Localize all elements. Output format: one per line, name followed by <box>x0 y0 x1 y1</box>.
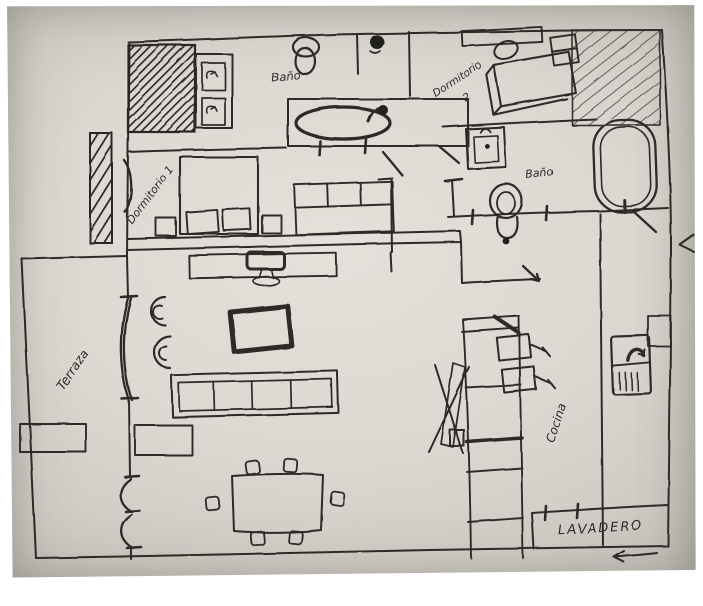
shower-head-icon <box>370 35 384 53</box>
kitchen-sink-icon <box>502 364 555 393</box>
bathtub-icon <box>288 99 468 146</box>
doors <box>121 147 656 548</box>
radiator-hatch-icon <box>90 133 112 243</box>
pillow-icon <box>492 38 520 62</box>
wall-right <box>662 30 671 546</box>
wall-kitchen-left <box>461 242 540 283</box>
sliding-door-terraza-icon <box>121 298 132 400</box>
room-bano1 <box>128 35 468 146</box>
arrows <box>614 235 694 562</box>
dining-chair-icon <box>245 460 260 475</box>
entrance-arrow-icon <box>680 235 694 252</box>
dining-table-icon <box>232 474 323 532</box>
vanity-icon <box>196 54 232 128</box>
wall-terrace-top <box>22 256 126 259</box>
label-dormitorio2-number: 2 <box>460 90 473 105</box>
room-dormitorio2 <box>462 27 660 125</box>
tv-icon <box>247 252 284 286</box>
nightstand-right-icon <box>262 215 281 233</box>
label-bano1: Baño <box>270 68 301 85</box>
sink-drainer-icon <box>611 335 651 394</box>
wall-bano1-partition <box>357 34 358 74</box>
wardrobe-hatch-2-icon <box>572 30 660 125</box>
dining-chair-icon <box>205 496 219 510</box>
cooktop-icon <box>497 332 550 361</box>
toilet-2-icon <box>490 184 522 244</box>
dining-chair-icon <box>330 491 345 506</box>
armchair-2-icon <box>154 336 170 368</box>
floor-plan-photo: Baño Dormitorio 1 Dormitorio 2 Baño Terr… <box>0 0 703 606</box>
door-leaf-hall-icon <box>383 152 402 175</box>
wall-unit-icon <box>648 316 671 346</box>
label-bano2: Baño <box>525 166 554 182</box>
wall-terrace-left <box>22 259 36 558</box>
coffee-table-icon <box>230 306 292 352</box>
wardrobe-hatch-icon <box>128 45 195 132</box>
bed-2-icon <box>180 157 258 234</box>
wall-hallway <box>378 178 392 272</box>
label-dormitorio2: Dormitorio <box>431 59 485 100</box>
nightstand-left-icon <box>156 218 176 236</box>
bed-icon <box>485 52 577 115</box>
wall-bano2-left <box>452 180 454 216</box>
sofa-icon <box>171 371 338 417</box>
room-living <box>135 252 345 545</box>
cabinet-icon <box>135 425 192 455</box>
dining-chair-icon <box>250 531 264 545</box>
door-leaf-bano2-icon <box>440 147 459 163</box>
wall-dorm1-top <box>128 148 286 152</box>
wall-dorm2-left <box>409 32 410 96</box>
lavadero-arrow-icon <box>614 551 657 562</box>
kitchen-counter-icon <box>450 316 523 558</box>
wall-kitchen-right-divider <box>600 214 603 545</box>
floor-plan-sketch: Baño Dormitorio 1 Dormitorio 2 Baño Terr… <box>0 0 703 606</box>
closet-icon <box>294 181 394 234</box>
room-bano2 <box>466 119 658 244</box>
label-lavadero: Lavadero <box>558 519 645 538</box>
media-console-icon <box>189 253 336 279</box>
bathtub-2-icon <box>592 119 657 213</box>
door-leaf-entrance-icon <box>633 211 656 232</box>
sink-icon <box>466 127 506 169</box>
wall-bedroom-divider-2 <box>128 231 461 250</box>
label-cocina: Cocina <box>543 401 569 444</box>
dining-chair-icon <box>283 458 297 472</box>
wall-bedroom-divider <box>128 231 460 239</box>
armchair-icon <box>151 297 165 325</box>
label-terraza: Terraza <box>53 346 91 392</box>
wall-ticks <box>121 139 578 548</box>
door-arcs-terraza-icon <box>121 479 133 548</box>
